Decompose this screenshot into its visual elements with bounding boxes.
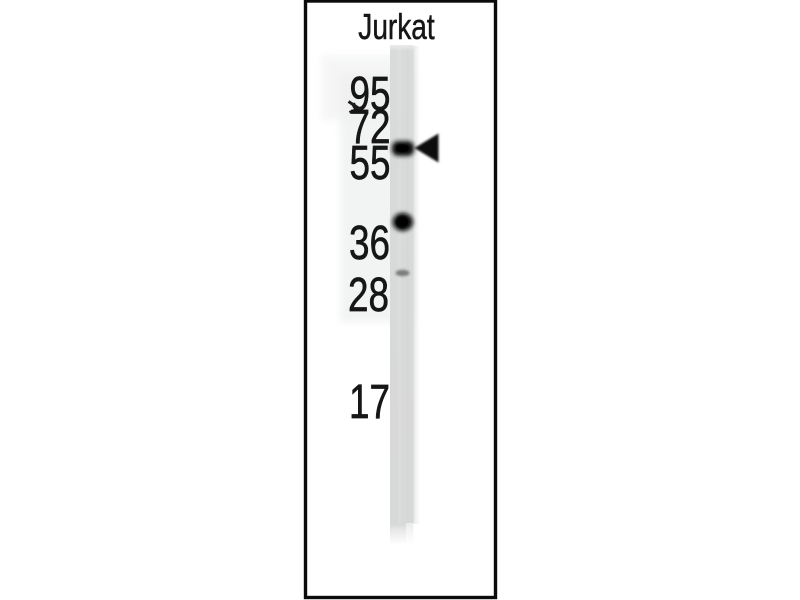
svg-text:17: 17 bbox=[349, 375, 390, 429]
svg-text:28: 28 bbox=[348, 268, 389, 322]
svg-text:36: 36 bbox=[349, 216, 390, 270]
svg-text:Jurkat: Jurkat bbox=[358, 7, 434, 47]
svg-text:55: 55 bbox=[350, 136, 391, 190]
